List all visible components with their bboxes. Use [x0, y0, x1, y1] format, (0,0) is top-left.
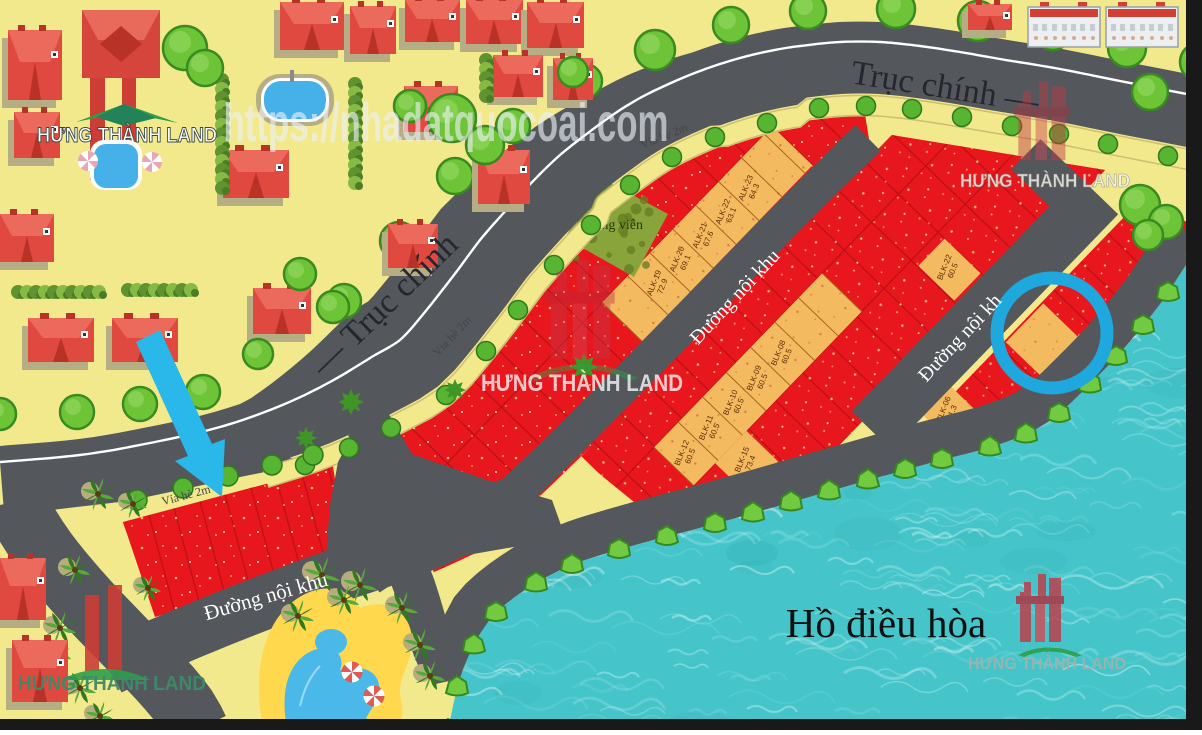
svg-text:HƯNG THÀNH LAND: HƯNG THÀNH LAND [968, 654, 1126, 673]
svg-text:HƯNG THÀNH LAND: HƯNG THÀNH LAND [18, 672, 206, 695]
svg-text:Hồ điều hòa: Hồ điều hòa [786, 600, 986, 646]
svg-text:https://nhadatquocoai.com: https://nhadatquocoai.com [224, 93, 669, 153]
svg-text:HƯNG THÀNH LAND: HƯNG THÀNH LAND [481, 369, 683, 397]
svg-text:HƯNG THÀNH LAND: HƯNG THÀNH LAND [960, 170, 1130, 191]
